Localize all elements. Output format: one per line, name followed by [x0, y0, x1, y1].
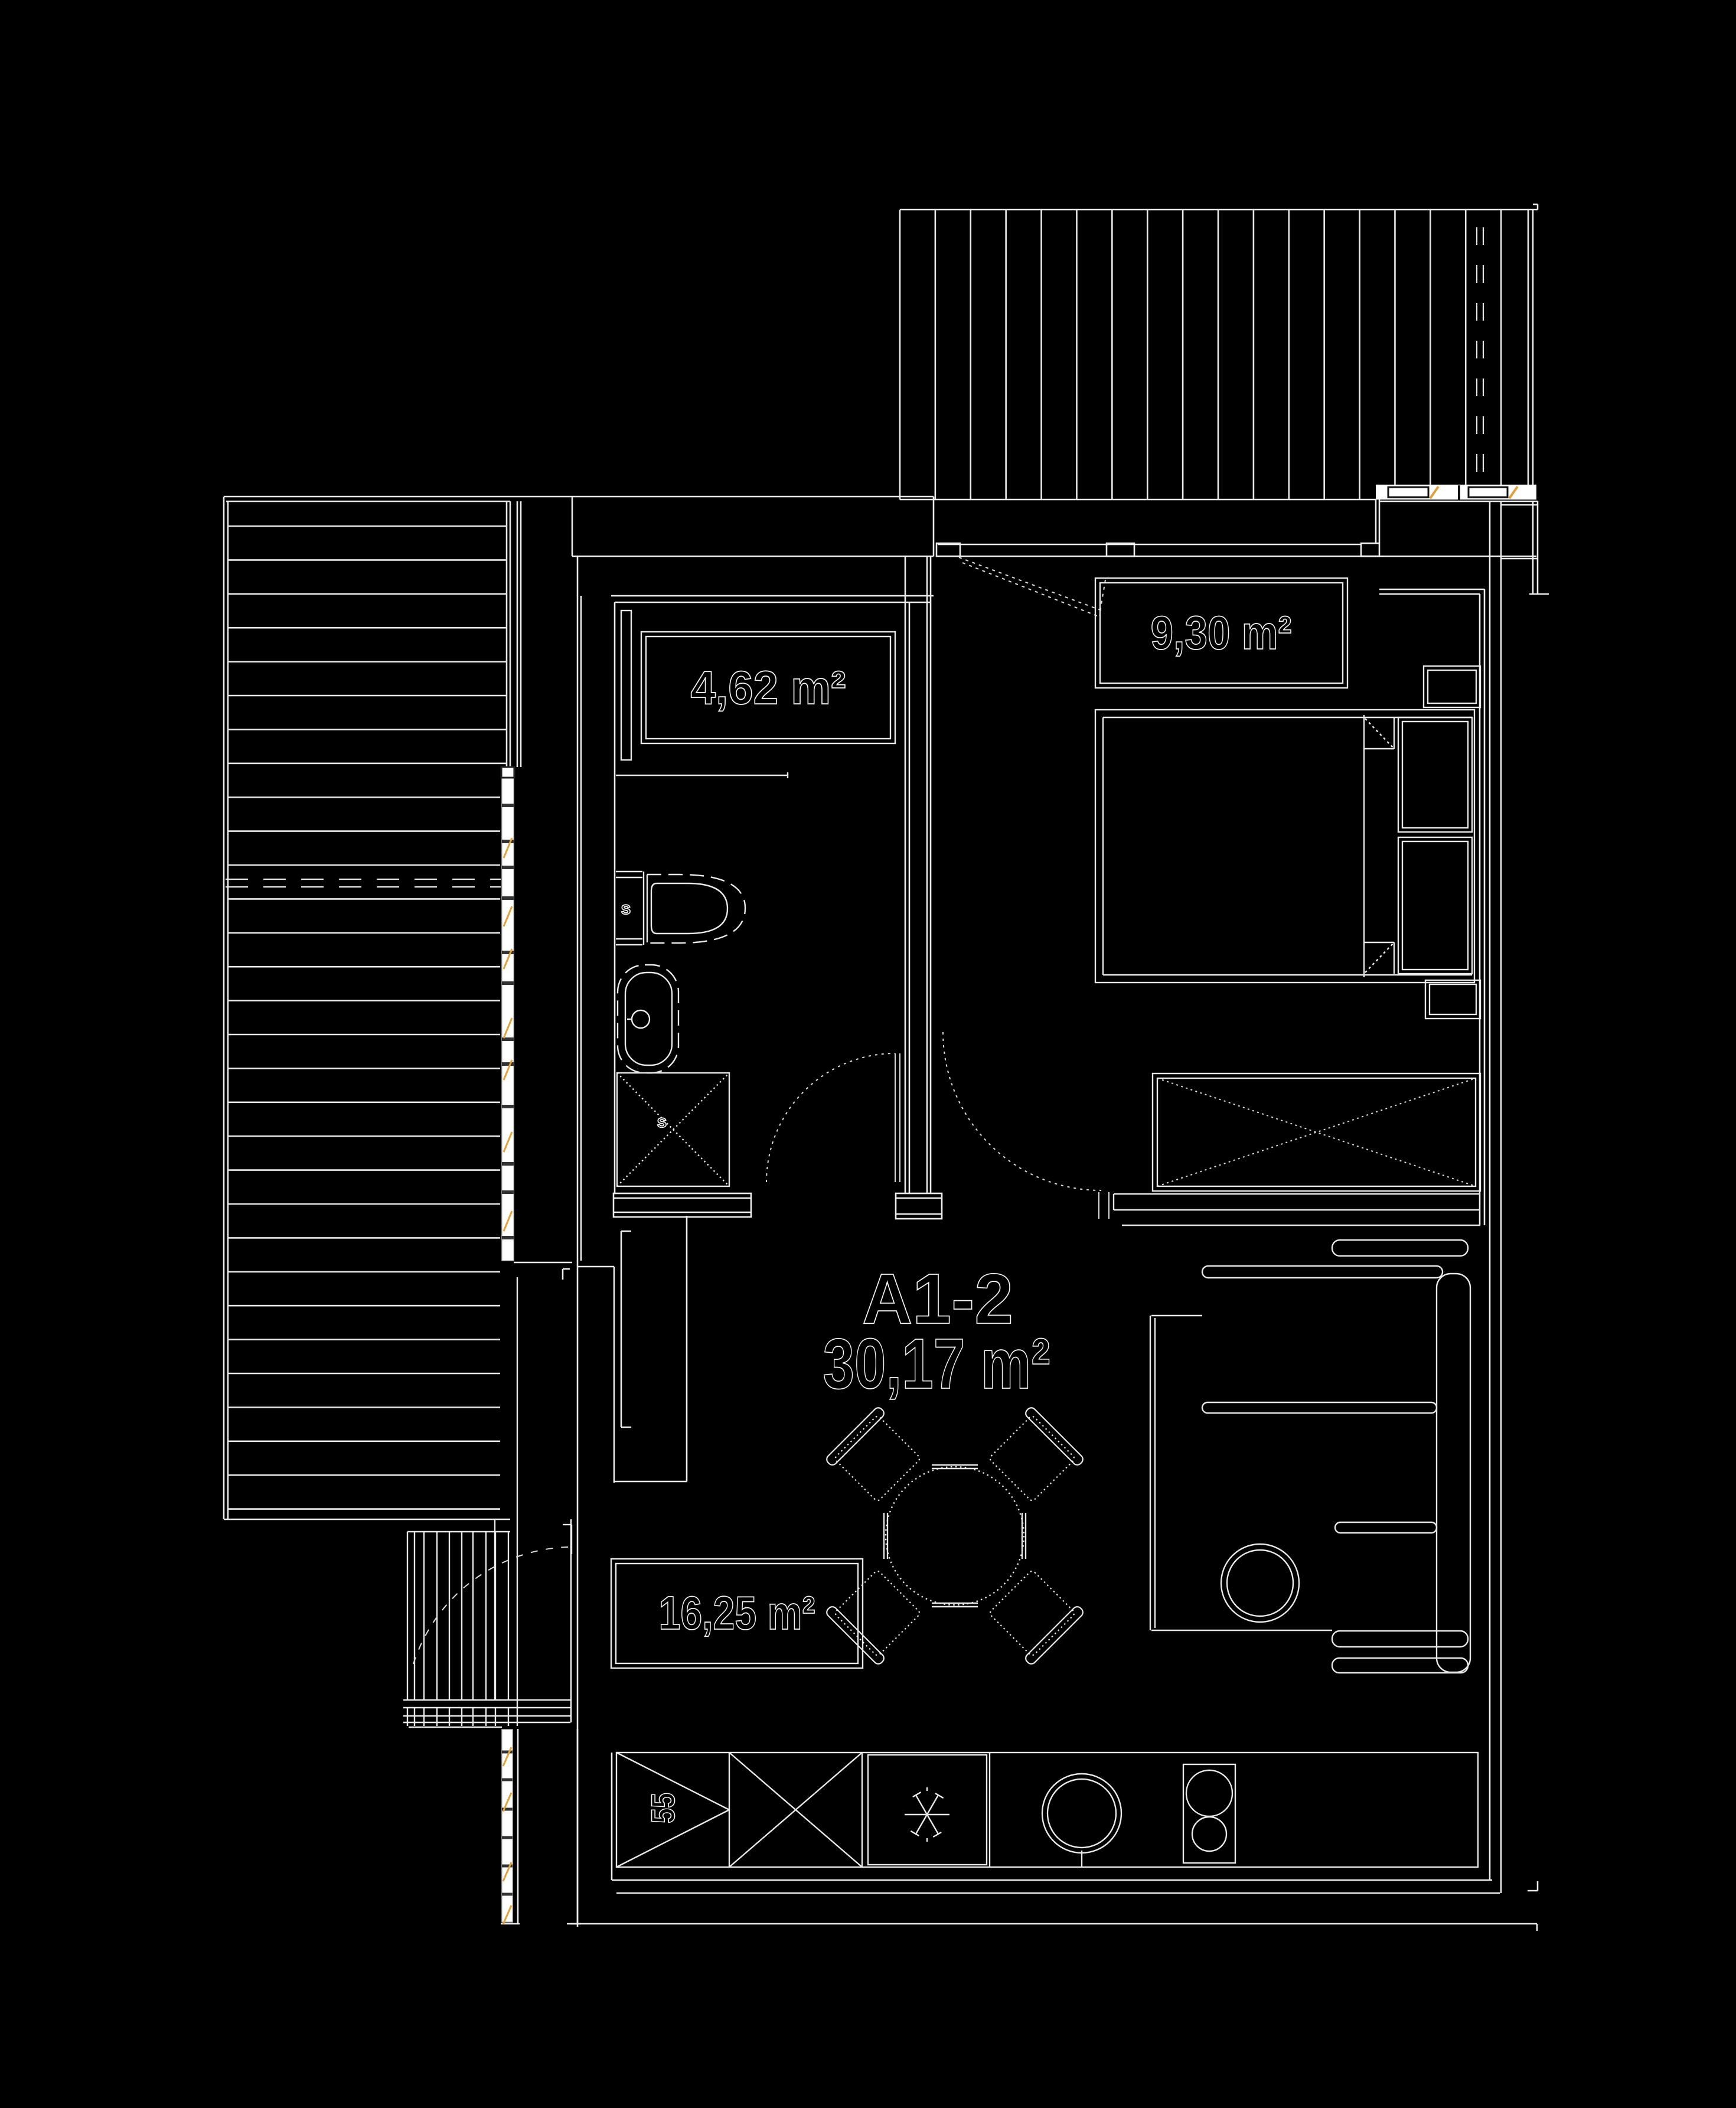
- svg-text:16,25 m²: 16,25 m²: [659, 1587, 815, 1639]
- svg-text:s: s: [657, 1112, 667, 1131]
- svg-text:4,62 m²: 4,62 m²: [691, 661, 846, 714]
- svg-text:55: 55: [644, 1793, 681, 1823]
- svg-text:s: s: [621, 899, 631, 918]
- svg-text:9,30 m²: 9,30 m²: [1151, 606, 1292, 659]
- svg-text:30,17 m²: 30,17 m²: [823, 1323, 1050, 1404]
